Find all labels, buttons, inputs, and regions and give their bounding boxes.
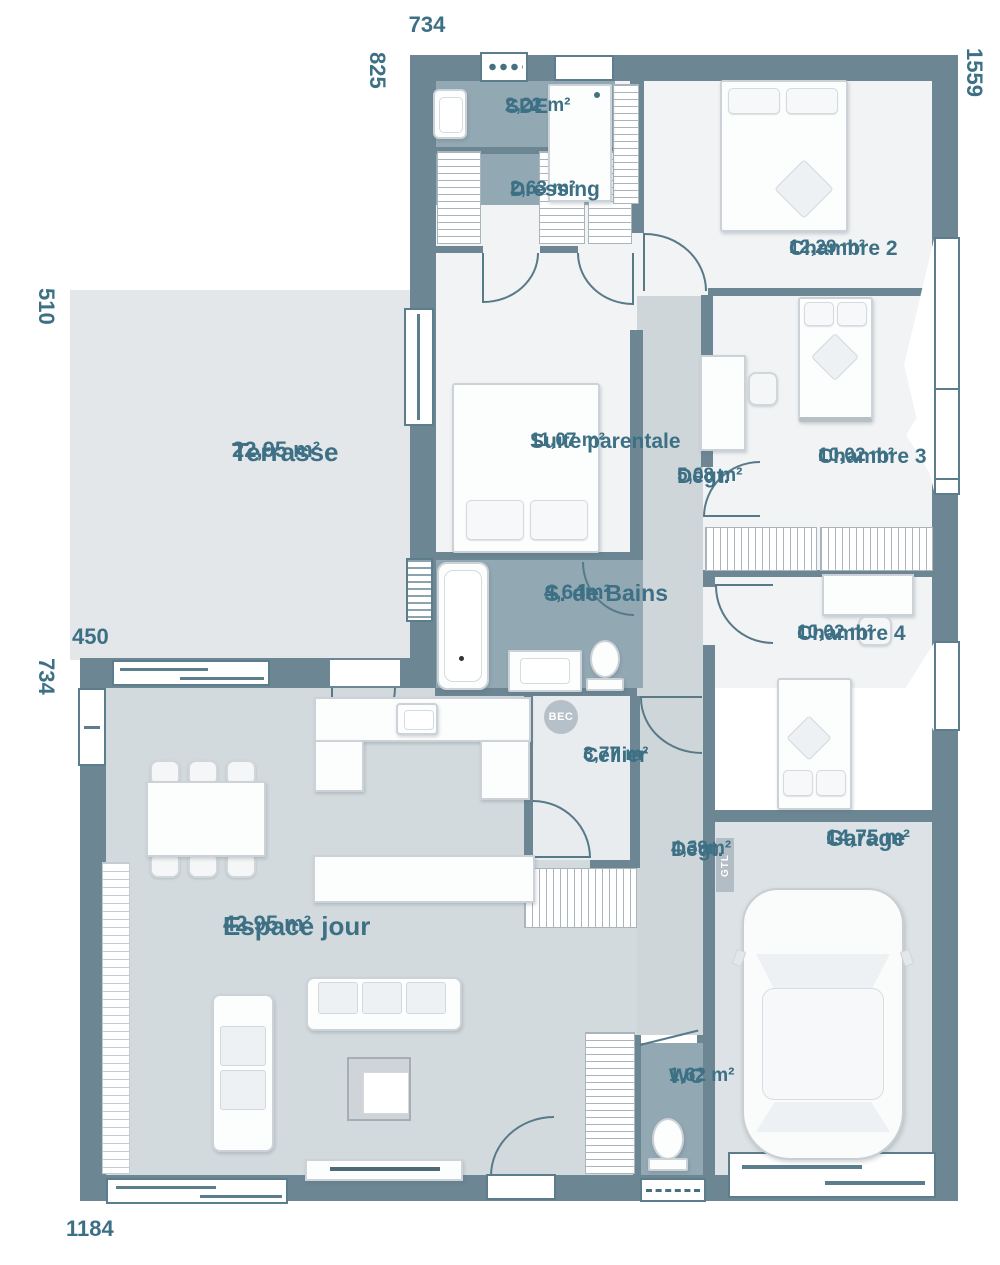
kitchen-sink-icon — [396, 703, 438, 735]
cushion-icon — [220, 1070, 266, 1110]
sink-bowl — [404, 710, 434, 730]
dimension-terrace-height: 510 — [33, 288, 59, 325]
chair-icon — [748, 372, 778, 406]
pillow-icon — [804, 302, 834, 326]
window-bathroom-louver — [406, 558, 433, 622]
car-windshield — [756, 954, 890, 990]
wall-segment — [540, 246, 578, 253]
hall-upper-floor — [637, 296, 703, 1035]
sliding-pane — [200, 1195, 282, 1198]
wardrobe — [613, 84, 639, 204]
wall-segment — [703, 810, 933, 822]
window-living-west — [78, 688, 106, 766]
wall-segment — [590, 860, 637, 868]
door-leaf — [632, 253, 634, 305]
dimension-left-bottom: 734 — [33, 658, 59, 695]
floor-plan: BEC GTL SDE 2,22 m² Dressing 2,63 m² Cha… — [0, 0, 1000, 1265]
wall-segment — [697, 1035, 711, 1043]
kitchen-counter — [480, 740, 530, 800]
door-leaf — [703, 515, 760, 517]
wardrobe — [437, 151, 481, 244]
wardrobe — [585, 1032, 635, 1174]
bec-label: BEC — [549, 711, 574, 723]
door-leaf — [640, 696, 702, 698]
dimension-bottom-width: 1184 — [66, 1216, 114, 1242]
vent-dots — [485, 57, 523, 77]
window-mullion — [84, 726, 100, 729]
pillow-icon — [728, 88, 780, 114]
window-mullion — [417, 314, 420, 420]
basin-bowl — [520, 658, 570, 684]
shower-drain — [594, 92, 600, 98]
sliding-pane — [116, 1186, 216, 1189]
tv-icon — [330, 1167, 440, 1171]
window-chambre4 — [934, 641, 960, 731]
door-leaf — [482, 253, 484, 303]
terrace-door-opening — [330, 660, 400, 686]
shelving-unit — [102, 862, 130, 1174]
cushion-icon — [318, 982, 358, 1014]
washbasin-icon — [433, 89, 467, 139]
window-living-north — [112, 660, 270, 686]
toilet-tank — [648, 1158, 688, 1171]
pillow-icon — [837, 302, 867, 326]
wall-segment — [435, 246, 483, 253]
dimension-right: 1559 — [961, 48, 987, 97]
door-leaf — [643, 233, 645, 291]
entry-door-leaf — [486, 1174, 556, 1200]
sliding-pane — [180, 677, 264, 680]
wall-segment — [630, 696, 640, 868]
coffee-table-top — [363, 1072, 409, 1114]
toilet-icon — [590, 640, 620, 678]
car-roof — [762, 988, 884, 1100]
dimension-left-top: 825 — [364, 52, 390, 89]
wall-segment — [932, 55, 958, 1201]
pillow-icon — [783, 770, 813, 796]
terrace-floor — [70, 290, 415, 660]
wall-segment — [703, 575, 715, 587]
toilet-icon — [652, 1118, 684, 1160]
dimension-top-width: 734 — [400, 12, 454, 38]
washbasin-icon — [508, 650, 582, 692]
dimension-terrace-width: 450 — [72, 624, 109, 650]
pillow-icon — [530, 500, 588, 540]
vent-slats — [646, 1189, 700, 1192]
car-rear-window — [756, 1102, 890, 1132]
door-leaf — [533, 856, 591, 858]
desk-icon — [822, 574, 914, 616]
window-top-shower — [554, 55, 614, 81]
wall-segment — [703, 645, 715, 1175]
window-sde-vent — [480, 52, 528, 82]
window-chambre3 — [934, 388, 960, 480]
wall-segment — [435, 552, 635, 560]
kitchen-counter — [314, 740, 364, 792]
toilet-tank — [586, 678, 624, 691]
bec-tag: BEC — [544, 700, 578, 734]
garage-door-line — [742, 1165, 862, 1169]
desk-icon — [700, 355, 746, 451]
car-icon — [742, 888, 904, 1160]
bathtub-icon — [437, 562, 489, 690]
window-suite — [404, 308, 434, 426]
window-wc-vent — [640, 1178, 706, 1202]
wardrobe — [820, 527, 933, 571]
sliding-pane — [120, 668, 208, 671]
bathtub-inner — [444, 570, 482, 682]
cushion-icon — [406, 982, 446, 1014]
kitchen-island — [313, 855, 535, 903]
window-bay-south — [106, 1178, 288, 1204]
garage-door-line — [825, 1181, 925, 1185]
dining-table-icon — [146, 781, 266, 857]
pillow-icon — [466, 500, 524, 540]
shutter-icon — [906, 687, 934, 731]
pillow-icon — [816, 770, 846, 796]
wardrobe — [524, 868, 637, 928]
pillow-icon — [786, 88, 838, 114]
bathtub-drain — [459, 656, 464, 661]
wardrobe — [705, 527, 817, 571]
cushion-icon — [362, 982, 402, 1014]
door-leaf — [715, 584, 773, 586]
cushion-icon — [220, 1026, 266, 1066]
wall-segment — [708, 288, 934, 296]
basin-bowl — [439, 97, 463, 133]
